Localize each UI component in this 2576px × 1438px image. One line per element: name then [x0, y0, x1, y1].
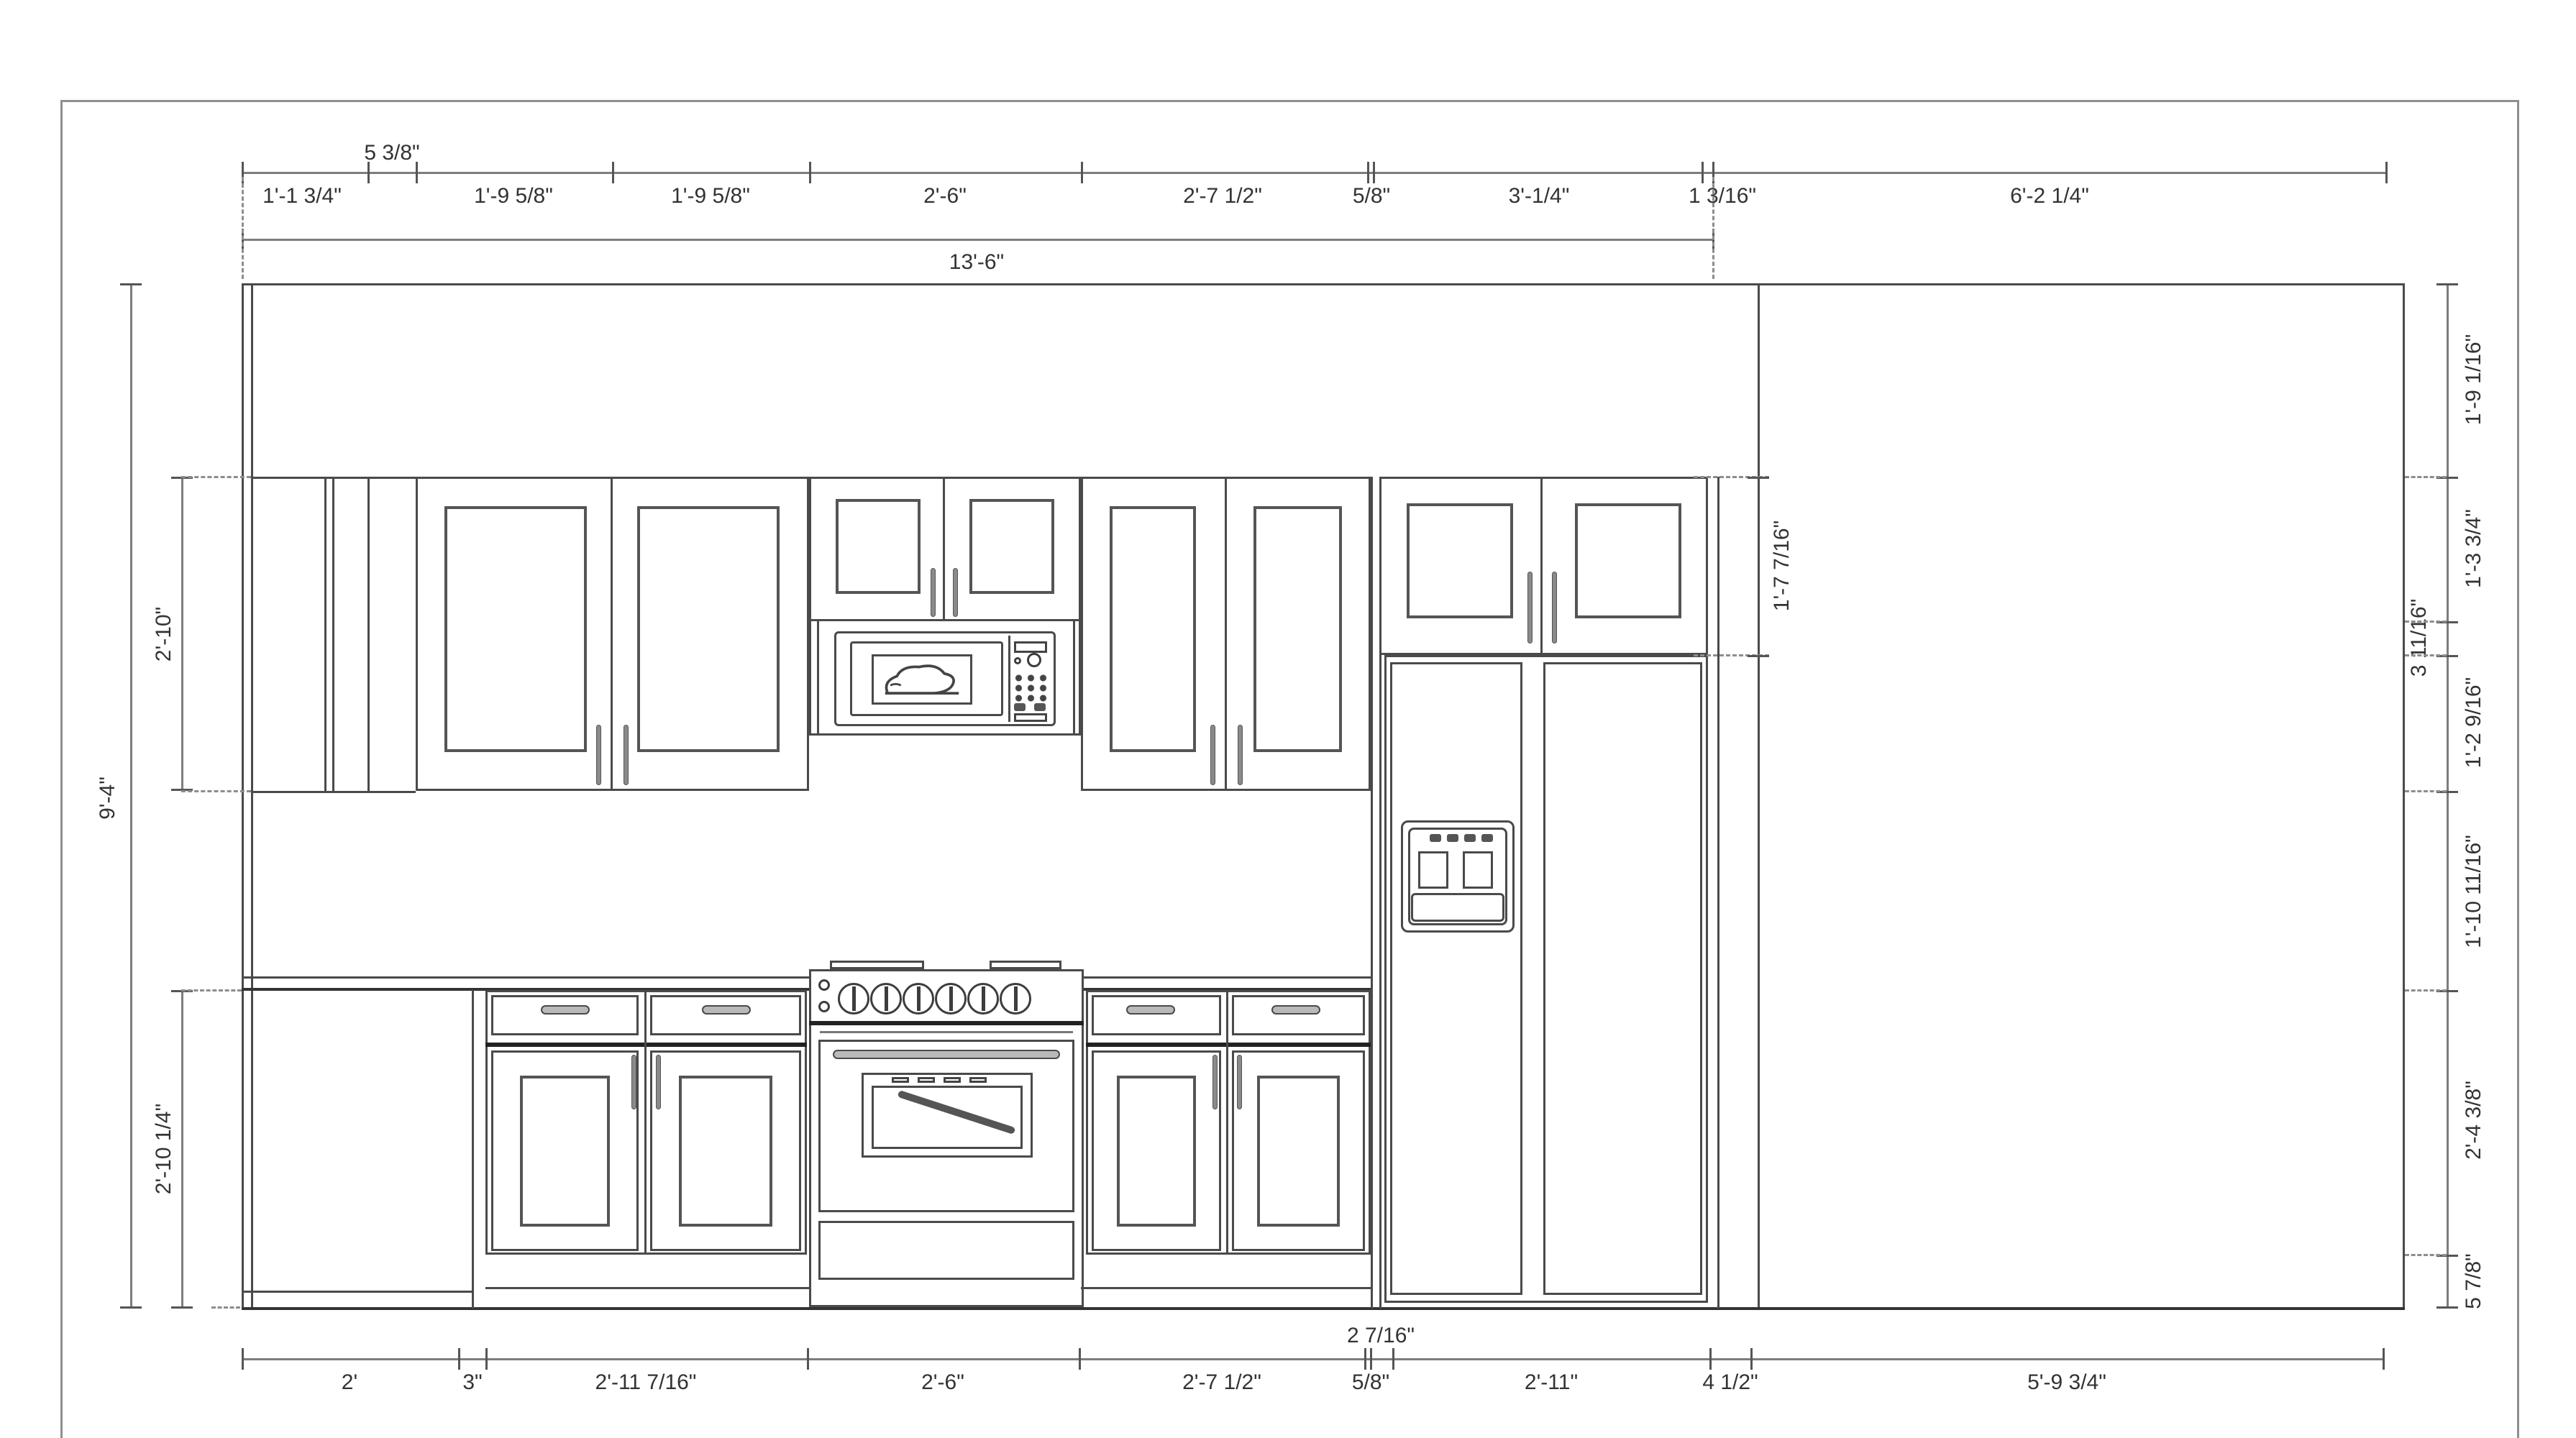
dim-label: 5/8" — [1353, 186, 1390, 207]
wall-cabinet-divider — [1540, 479, 1543, 653]
cabinet-door-panel — [1117, 1076, 1196, 1227]
oven-drawer — [818, 1221, 1074, 1280]
dim-tick — [1081, 162, 1083, 183]
dim-tick — [458, 1348, 460, 1370]
wall-right-line — [2403, 283, 2405, 1309]
dim-tick — [1370, 1348, 1372, 1370]
dim-tick — [1079, 1348, 1081, 1370]
microwave-shelf-bottom — [809, 733, 1081, 736]
door-handle — [631, 1055, 636, 1109]
floor-extension-dash — [211, 1306, 240, 1309]
dim-label: 5 7/8" — [2463, 1253, 2485, 1309]
drawer-pull — [1126, 1005, 1175, 1015]
dim-label: 1'-2 9/16" — [2463, 677, 2485, 768]
dispenser-tray — [1411, 893, 1504, 922]
door-handle — [1212, 1055, 1218, 1109]
wall-corner-line — [1758, 283, 1760, 1309]
dim-label: 5/8" — [1352, 1372, 1389, 1393]
dispenser-button — [1481, 834, 1493, 842]
microwave-shelf-side — [1073, 621, 1075, 736]
dim-extension-dash — [2405, 620, 2447, 623]
door-handle — [1210, 725, 1215, 785]
range-indicator — [818, 1001, 830, 1012]
dim-label: 2' — [342, 1372, 357, 1393]
cabinet-door-panel — [637, 506, 780, 752]
dim-extension-dash — [2405, 654, 2447, 656]
dim-tick — [367, 162, 370, 183]
cabinet-door-panel — [836, 499, 921, 594]
page-border-left — [60, 100, 63, 1438]
microwave-keypad — [1011, 672, 1051, 702]
dim-label: 6'-2 1/4" — [2010, 186, 2089, 207]
wall-left-line-outer — [242, 283, 244, 1309]
range-knob — [1000, 983, 1031, 1015]
drawer-front — [1232, 995, 1365, 1035]
cabinet-door-panel — [1575, 503, 1681, 618]
dim-extension-dash — [2405, 790, 2447, 792]
cabinet-door-panel — [1257, 1076, 1340, 1227]
door-handle — [1237, 1055, 1242, 1109]
dim-label: 3'-1/4" — [1509, 186, 1570, 207]
dim-label: 2'-11 7/16" — [595, 1372, 697, 1393]
dispenser-well — [1418, 851, 1448, 889]
range-knob — [967, 983, 999, 1015]
oven-vent — [969, 1077, 987, 1083]
dim-label: 2'-6" — [921, 1372, 964, 1393]
fridge-right-door — [1543, 662, 1702, 1295]
toe-kick-line — [242, 1291, 472, 1293]
dimension-line-overall — [242, 239, 1712, 241]
range-indicator — [818, 979, 830, 991]
oven-vent — [944, 1077, 961, 1083]
dim-label: 1'-10 11/16" — [2463, 835, 2485, 948]
dimension-line-left-overall — [130, 283, 132, 1309]
drawer-pull — [702, 1005, 751, 1015]
dim-tick — [1748, 477, 1769, 479]
base-cabinet-1-divider — [644, 992, 647, 1252]
dim-tick — [120, 283, 142, 285]
microwave-bottom-trim — [1014, 713, 1047, 722]
range-control-rail — [809, 1021, 1084, 1025]
dim-label: 1'-3 3/4" — [2463, 509, 2485, 588]
dim-label: 3 11/16" — [2408, 599, 2430, 677]
fridge-left-door — [1390, 662, 1522, 1295]
dim-label: 5'-9 3/4" — [2027, 1372, 2106, 1393]
base-cabinet-2-rail — [1086, 1043, 1371, 1047]
dim-extension-dash — [181, 476, 251, 478]
cabinet-door-panel — [969, 499, 1054, 594]
drawer-front — [650, 995, 801, 1035]
dim-tick — [2436, 283, 2458, 285]
dim-label: 1'-9 5/8" — [474, 186, 553, 207]
drawer-front — [491, 995, 639, 1035]
cabinet-door-panel — [679, 1076, 772, 1227]
cabinet-door-panel — [1407, 503, 1513, 618]
floor-line — [242, 1307, 2405, 1310]
microwave-shelf-side — [817, 621, 819, 736]
range-knob — [935, 983, 967, 1015]
door-handle — [953, 568, 958, 617]
drawing-sheet: 1'-1 3/4" 5 3/8" 1'-9 5/8" 1'-9 5/8" 2'-… — [0, 0, 2576, 1438]
dim-extension-dash — [242, 177, 244, 279]
dim-extension-dash — [1712, 177, 1714, 279]
microwave-dial — [1027, 653, 1041, 667]
dim-tick — [171, 1306, 193, 1309]
dim-label: 1 3/16" — [1689, 186, 1756, 207]
upper-corner-panel-bottom — [251, 791, 416, 793]
upper-filler-line — [324, 477, 326, 791]
countertop-line — [1081, 976, 1371, 979]
page-border-top — [60, 100, 2519, 102]
countertop-line — [242, 976, 809, 979]
cabinet-door-panel — [1110, 506, 1196, 752]
dim-extension-dash — [181, 790, 251, 792]
dim-tick — [120, 1306, 142, 1309]
toe-kick-line — [485, 1287, 809, 1289]
door-handle — [624, 725, 629, 785]
dim-tick — [612, 162, 614, 183]
drawer-front — [1092, 995, 1221, 1035]
microwave-food-icon — [874, 656, 970, 702]
base-filler-line — [472, 990, 474, 1309]
microwave-button — [1034, 703, 1046, 711]
dispenser-well — [1463, 851, 1493, 889]
dim-label: 1'-7 7/16" — [1771, 521, 1793, 611]
dispenser-button — [1464, 834, 1476, 842]
dim-tick — [1750, 1348, 1753, 1370]
dim-label: 3" — [462, 1372, 482, 1393]
page-border-right — [2517, 100, 2519, 1438]
dim-label: 13'-6" — [949, 252, 1004, 273]
dim-label: 2'-4 3/8" — [2463, 1081, 2485, 1160]
dim-label: 2'-10 1/4" — [153, 1104, 175, 1194]
dim-extension-dash — [2405, 989, 2447, 992]
wall-cabinet-2-divider — [1225, 479, 1227, 789]
dim-tick — [807, 1348, 809, 1370]
fridge-side-panel — [1371, 477, 1373, 1309]
dim-label: 1'-1 3/4" — [262, 186, 342, 207]
microwave-button — [1014, 703, 1026, 711]
dim-label: 1'-9 5/8" — [671, 186, 750, 207]
drawer-pull — [1271, 1005, 1320, 1015]
dim-tick — [1709, 1348, 1712, 1370]
dispenser-button — [1447, 834, 1458, 842]
upper-filler-line — [332, 477, 334, 791]
wall-cabinet-1-divider — [611, 479, 613, 789]
dimension-line-top — [242, 172, 2385, 174]
oven-vent — [892, 1077, 909, 1083]
dim-label: 2'-7 1/2" — [1183, 186, 1262, 207]
dimension-line-right — [2447, 283, 2449, 1309]
dim-label: 5 3/8" — [364, 142, 419, 164]
dim-extension-dash — [2405, 476, 2447, 478]
range-knob — [903, 983, 934, 1015]
dimension-line-left-upper — [181, 477, 183, 791]
range-trim-line — [820, 1031, 1073, 1033]
door-handle — [931, 568, 936, 617]
dimension-line-left-base — [181, 990, 183, 1309]
dim-label: 2'-7 1/2" — [1182, 1372, 1261, 1393]
cabinet-door-panel — [1253, 506, 1342, 752]
base-cabinet-2-divider — [1226, 992, 1228, 1252]
dim-label: 2'-11" — [1525, 1372, 1578, 1393]
dispenser-button — [1430, 834, 1441, 842]
wall-cabinet-divider — [943, 479, 945, 619]
dim-tick — [1392, 1348, 1394, 1370]
dim-label: 2 7/16" — [1347, 1325, 1415, 1347]
door-handle — [1552, 572, 1557, 644]
dim-extension-dash — [181, 989, 242, 992]
upper-filler-line — [367, 477, 370, 791]
cabinet-door-panel — [520, 1076, 610, 1227]
microwave-display — [1014, 641, 1047, 653]
fridge-side-panel — [1717, 477, 1719, 1309]
wall-left-line-inner — [251, 283, 253, 1309]
dim-tick — [2436, 1306, 2458, 1309]
cabinet-door-panel — [444, 506, 587, 752]
dim-label: 2'-10" — [153, 607, 175, 661]
dim-tick — [242, 1348, 244, 1370]
dim-tick — [1367, 162, 1369, 183]
dim-tick — [2385, 162, 2388, 183]
dim-label: 2'-6" — [923, 186, 967, 207]
door-handle — [1238, 725, 1243, 785]
range-knob — [870, 983, 902, 1015]
door-handle — [656, 1055, 661, 1109]
oven-vent — [918, 1077, 935, 1083]
dim-tick — [1748, 655, 1769, 657]
dim-label: 9'-4" — [97, 777, 119, 820]
dim-tick — [1702, 162, 1704, 183]
door-handle — [596, 725, 601, 785]
oven-window-inner — [872, 1086, 1023, 1149]
microwave-window — [872, 654, 972, 705]
microwave-shelf-side — [809, 621, 811, 736]
toe-kick-line — [1081, 1287, 1371, 1289]
range-burner-grate — [830, 961, 924, 969]
dimension-line-bottom — [242, 1358, 2383, 1360]
door-handle — [1527, 572, 1533, 644]
oven-handle — [833, 1050, 1060, 1059]
dim-tick — [416, 162, 418, 183]
microwave-button — [1014, 657, 1021, 664]
dim-tick — [809, 162, 811, 183]
drawer-pull — [541, 1005, 590, 1015]
range-knob — [838, 983, 869, 1015]
dim-label: 4 1/2" — [1702, 1372, 1758, 1393]
dim-tick — [1373, 162, 1375, 183]
dim-tick — [1364, 1348, 1366, 1370]
range-burner-grate — [990, 961, 1061, 969]
dim-tick — [485, 1348, 488, 1370]
microwave-panel-divider — [1008, 636, 1010, 722]
dim-extension-dash — [2405, 1254, 2447, 1256]
wall-top-line — [242, 283, 2405, 285]
dim-tick — [2383, 1348, 2385, 1370]
dim-label: 1'-9 1/16" — [2463, 334, 2485, 425]
